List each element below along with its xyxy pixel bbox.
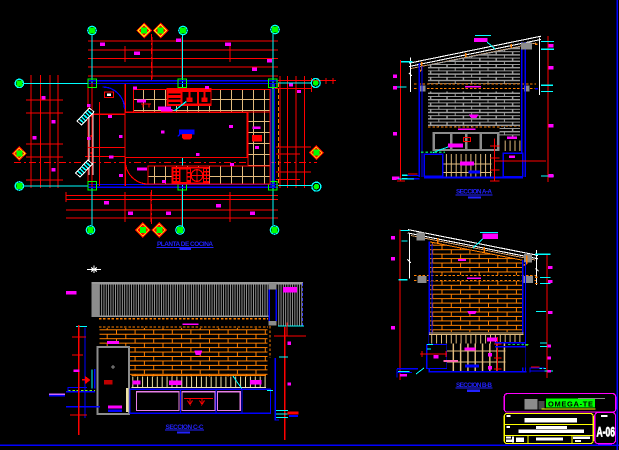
svg-text:OMEGA-TE: OMEGA-TE xyxy=(548,399,593,408)
svg-text:A-06: A-06 xyxy=(597,424,616,440)
